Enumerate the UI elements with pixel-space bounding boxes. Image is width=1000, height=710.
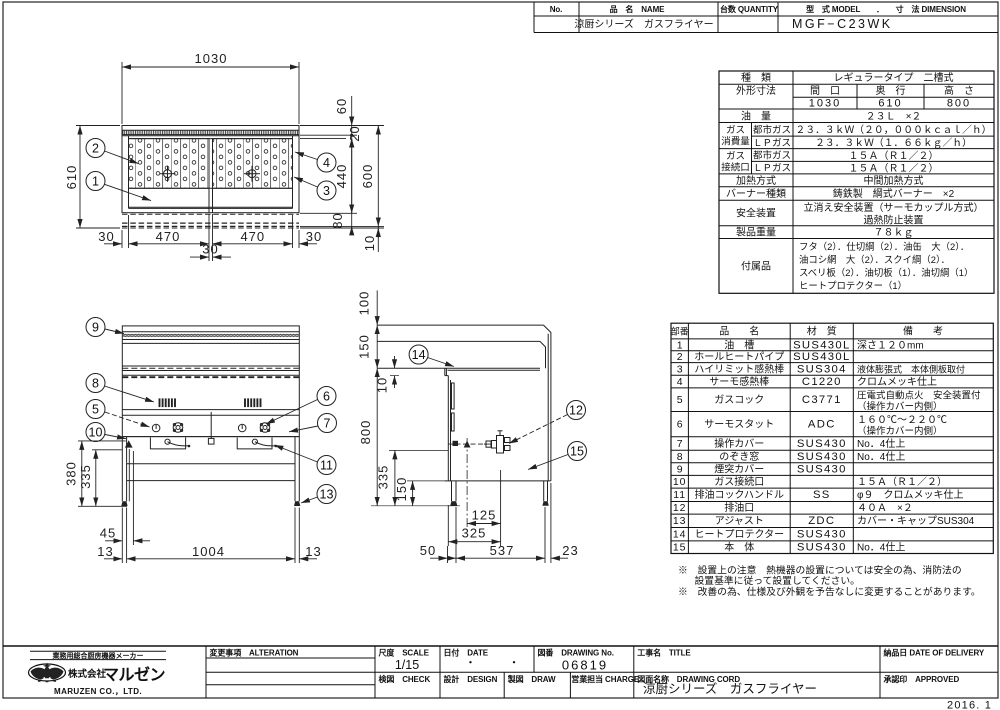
svg-text:ガスコック: ガスコック: [714, 394, 764, 406]
svg-text:備 考: 備 考: [903, 325, 943, 338]
svg-text:06819: 06819: [562, 658, 608, 673]
svg-text:納品日 DATE OF DELIVERY: 納品日 DATE OF DELIVERY: [884, 648, 985, 658]
svg-text:間 口: 間 口: [810, 85, 840, 97]
svg-text:深さ１２０mm: 深さ１２０mm: [857, 339, 924, 351]
svg-text:SUS430: SUS430: [797, 451, 847, 463]
svg-text:537: 537: [490, 543, 515, 558]
svg-text:45: 45: [100, 526, 116, 541]
svg-text:23: 23: [562, 543, 578, 558]
svg-text:消費量: 消費量: [721, 136, 750, 148]
svg-text:8: 8: [677, 451, 683, 463]
svg-text:12: 12: [569, 404, 583, 418]
svg-text:１５Ａ（Ｒ１／２）: １５Ａ（Ｒ１／２）: [849, 150, 939, 162]
svg-text:7: 7: [677, 438, 683, 450]
svg-text:10: 10: [375, 377, 390, 393]
svg-text:ホールヒートパイプ: ホールヒートパイプ: [694, 351, 784, 363]
svg-text:都市ガス: 都市ガス: [753, 124, 791, 136]
svg-text:470: 470: [240, 229, 265, 244]
svg-text:２３Ｌ ×２: ２３Ｌ ×２: [866, 112, 922, 123]
svg-text:3: 3: [677, 363, 683, 375]
svg-text:ガス接続口: ガス接続口: [714, 475, 764, 488]
svg-text:工事名 TITLE: 工事名 TITLE: [637, 648, 691, 658]
svg-text:高 さ: 高 さ: [944, 84, 974, 97]
svg-text:600: 600: [360, 164, 375, 189]
svg-text:油コシ網 大（2）．スクイ綱（2）．: 油コシ網 大（2）．スクイ綱（2）．: [799, 254, 950, 265]
svg-text:No.: No.: [550, 5, 563, 14]
svg-text:800: 800: [947, 98, 971, 110]
svg-text:設置基準に従って設置してください。: 設置基準に従って設置してください。: [695, 574, 860, 587]
svg-text:検図 CHECK: 検図 CHECK: [379, 674, 431, 684]
svg-text:335: 335: [376, 465, 391, 490]
svg-text:No．4仕上: No．4仕上: [857, 437, 905, 450]
svg-text:150: 150: [394, 477, 409, 502]
svg-text:MGF−C23WK: MGF−C23WK: [792, 17, 893, 31]
svg-text:SUS430L: SUS430L: [793, 339, 850, 351]
svg-text:１５Ａ（Ｒ１／２）: １５Ａ（Ｒ１／２）: [849, 163, 939, 175]
svg-text:8: 8: [92, 377, 99, 391]
svg-text:SS: SS: [813, 489, 831, 501]
svg-text:4: 4: [323, 156, 330, 170]
svg-text:変更事項 ALTERATION: 変更事項 ALTERATION: [210, 648, 299, 658]
svg-text:1030: 1030: [195, 51, 228, 66]
svg-text:液体膨張式 本体側板取付: 液体膨張式 本体側板取付: [857, 363, 965, 374]
svg-text:30: 30: [202, 242, 218, 257]
svg-text:型 式 MODEL ． 寸 法 DIMENSION: 型 式 MODEL ． 寸 法 DIMENSION: [806, 4, 966, 14]
svg-text:※ 設置上の注意 熱機器の設置については安全の為、消防法の: ※ 設置上の注意 熱機器の設置については安全の為、消防法の: [678, 564, 962, 577]
svg-text:付属品: 付属品: [741, 260, 771, 273]
svg-text:２３．３ｋＷ（１．６６ｋｇ／ｈ）: ２３．３ｋＷ（１．６６ｋｇ／ｈ）: [815, 137, 972, 149]
svg-text:610: 610: [64, 165, 79, 190]
svg-text:フタ（2）．仕切綱（2）．油缶 大（2）．: フタ（2）．仕切綱（2）．油缶 大（2）．: [799, 241, 969, 252]
svg-text:安全装置: 安全装置: [736, 207, 776, 220]
svg-text:油 槽: 油 槽: [724, 338, 754, 351]
svg-text:610: 610: [878, 98, 902, 110]
svg-text:ガス: ガス: [726, 125, 745, 136]
svg-text:バーナー種類: バーナー種類: [726, 187, 786, 200]
svg-text:奥 行: 奥 行: [876, 84, 906, 97]
svg-text:50: 50: [420, 543, 436, 558]
svg-text:7: 7: [324, 417, 331, 431]
svg-text:設計 DESIGN: 設計 DESIGN: [444, 674, 498, 684]
svg-text:150: 150: [357, 334, 372, 359]
svg-text:接続口: 接続口: [721, 162, 750, 174]
svg-text:11: 11: [673, 489, 686, 501]
svg-text:鋳鉄製 綱式バーナー ×2: 鋳鉄製 綱式バーナー ×2: [833, 187, 955, 200]
svg-text:1/15: 1/15: [395, 658, 419, 672]
svg-text:ＬＰガス: ＬＰガス: [753, 138, 791, 149]
svg-text:都市ガス: 都市ガス: [753, 150, 791, 162]
svg-text:スベリ板（2）．油切板（1）．油切綱（1）: スベリ板（2）．油切板（1）．油切綱（1）: [799, 267, 973, 278]
svg-text:C1220: C1220: [802, 376, 842, 388]
svg-text:ＬＰガス: ＬＰガス: [753, 163, 791, 174]
svg-text:・: ・: [509, 657, 520, 669]
svg-text:3: 3: [323, 184, 330, 198]
svg-text:排油口: 排油口: [724, 501, 754, 514]
svg-text:13: 13: [673, 515, 687, 527]
svg-text:ヒートプロテクター（1）: ヒートプロテクター（1）: [799, 280, 907, 291]
svg-text:のぞき窓: のぞき窓: [719, 450, 759, 463]
svg-text:マルゼン: マルゼン: [103, 665, 166, 684]
svg-text:1: 1: [92, 175, 99, 189]
svg-text:5: 5: [677, 394, 683, 406]
svg-text:（操作カバー内側）: （操作カバー内側）: [857, 425, 943, 437]
svg-text:2016. 1: 2016. 1: [947, 700, 992, 710]
svg-text:SUS430: SUS430: [797, 542, 847, 554]
svg-text:１５Ａ（Ｒ１／２）: １５Ａ（Ｒ１／２）: [857, 476, 947, 488]
svg-text:100: 100: [357, 291, 372, 316]
svg-text:440: 440: [334, 164, 349, 189]
svg-text:クロムメッキ仕上: クロムメッキ仕上: [857, 375, 937, 388]
svg-text:30: 30: [306, 229, 322, 244]
svg-text:11: 11: [320, 459, 333, 473]
svg-text:サーモ感熱棒: サーモ感熱棒: [709, 375, 769, 388]
svg-text:13: 13: [305, 544, 321, 559]
svg-text:ZDC: ZDC: [808, 515, 835, 527]
svg-text:4: 4: [677, 376, 683, 388]
svg-text:20: 20: [347, 125, 362, 141]
svg-text:6: 6: [677, 419, 683, 431]
svg-text:1004: 1004: [192, 544, 225, 559]
svg-text:470: 470: [156, 229, 181, 244]
svg-text:涼厨シリーズ ガスフライヤー: 涼厨シリーズ ガスフライヤー: [574, 18, 713, 31]
svg-text:1: 1: [677, 339, 683, 351]
svg-text:煙突カバー: 煙突カバー: [714, 463, 764, 476]
svg-text:品 名 NAME: 品 名 NAME: [610, 4, 666, 14]
svg-text:業務用総合厨房機器メーカー: 業務用総合厨房機器メーカー: [52, 651, 144, 660]
svg-text:No．4仕上: No．4仕上: [857, 541, 905, 554]
svg-text:MARUZEN CO.，LTD.: MARUZEN CO.，LTD.: [54, 687, 142, 696]
svg-text:４０Ａ ×２: ４０Ａ ×２: [857, 503, 913, 514]
svg-text:12: 12: [673, 502, 687, 514]
svg-text:60: 60: [334, 98, 349, 114]
svg-text:カバー・キャップSUS304: カバー・キャップSUS304: [857, 515, 975, 527]
svg-text:ADC: ADC: [808, 419, 836, 431]
svg-text:6: 6: [323, 390, 330, 404]
svg-text:13: 13: [320, 488, 334, 502]
svg-text:日付 DATE: 日付 DATE: [444, 648, 489, 658]
svg-text:涼厨シリーズ ガスフライヤー: 涼厨シリーズ ガスフライヤー: [643, 681, 817, 696]
svg-text:SUS430: SUS430: [797, 464, 847, 476]
svg-text:10: 10: [362, 235, 377, 251]
svg-text:SUS430: SUS430: [797, 529, 847, 541]
svg-text:30: 30: [98, 229, 114, 244]
svg-text:営業担当 CHARGE: 営業担当 CHARGE: [571, 674, 640, 684]
svg-text:・: ・: [465, 657, 476, 669]
svg-text:10: 10: [673, 476, 687, 488]
svg-text:380: 380: [64, 461, 79, 486]
svg-text:15: 15: [570, 445, 584, 459]
svg-text:アジャスト: アジャスト: [715, 516, 764, 527]
svg-text:１６０℃～２２０℃: １６０℃～２２０℃: [857, 415, 947, 426]
svg-text:品 名: 品 名: [719, 325, 759, 338]
svg-text:ヒートプロテクター: ヒートプロテクター: [694, 529, 784, 541]
svg-text:2: 2: [92, 142, 99, 156]
svg-text:図番 DRAWING No.: 図番 DRAWING No.: [538, 648, 614, 658]
svg-text:ガス: ガス: [726, 151, 745, 162]
svg-text:SUS430: SUS430: [797, 438, 847, 450]
svg-text:立消え安全装置（サーモカップル方式）: 立消え安全装置（サーモカップル方式）: [804, 201, 984, 214]
svg-text:本 体: 本 体: [724, 541, 754, 554]
svg-text:14: 14: [673, 529, 687, 541]
svg-text:14: 14: [412, 348, 426, 362]
svg-text:5: 5: [92, 403, 99, 417]
svg-text:油 量: 油 量: [741, 109, 771, 122]
svg-text:125: 125: [472, 508, 497, 523]
svg-text:9: 9: [92, 321, 99, 335]
svg-text:335: 335: [78, 464, 93, 489]
svg-text:9: 9: [677, 464, 683, 476]
svg-text:サーモスタット: サーモスタット: [704, 419, 774, 431]
svg-text:1030: 1030: [809, 98, 841, 110]
svg-text:株式会社: 株式会社: [68, 668, 107, 680]
svg-text:台数 QUANTITY: 台数 QUANTITY: [720, 4, 779, 14]
svg-text:材 質: 材 質: [807, 325, 837, 338]
svg-text:製図 DRAW: 製図 DRAW: [507, 674, 556, 684]
svg-text:800: 800: [358, 420, 373, 445]
svg-text:13: 13: [97, 544, 113, 559]
svg-text:325: 325: [462, 526, 487, 541]
svg-text:製品重量: 製品重量: [736, 226, 776, 239]
svg-text:No．4仕上: No．4仕上: [857, 450, 905, 463]
svg-text:圧電式自動点火 安全装置付: 圧電式自動点火 安全装置付: [857, 390, 981, 402]
svg-text:2: 2: [677, 351, 683, 363]
svg-text:操作カバー: 操作カバー: [714, 437, 764, 450]
svg-text:排油コックハンドル: 排油コックハンドル: [695, 488, 785, 501]
svg-text:ハイリミット感熱棒: ハイリミット感熱棒: [694, 362, 784, 375]
svg-text:部番: 部番: [671, 326, 689, 337]
svg-text:尺度 SCALE: 尺度 SCALE: [379, 648, 430, 658]
svg-text:種 類: 種 類: [741, 71, 771, 84]
svg-text:80: 80: [330, 212, 345, 228]
svg-text:外形寸法: 外形寸法: [736, 84, 776, 97]
svg-text:レギュラータイプ 二槽式: レギュラータイプ 二槽式: [834, 71, 954, 84]
svg-text:SUS430L: SUS430L: [793, 351, 850, 363]
svg-text:（操作カバー内側）: （操作カバー内側）: [857, 401, 943, 413]
svg-text:承認印 APPROVED: 承認印 APPROVED: [884, 674, 960, 684]
svg-text:15: 15: [673, 542, 687, 554]
svg-text:10: 10: [89, 426, 103, 440]
svg-text:過熱防止装置: 過熱防止装置: [864, 213, 924, 226]
svg-text:C3771: C3771: [802, 394, 842, 406]
svg-text:中間加熱方式: 中間加熱方式: [864, 174, 924, 187]
svg-text:SUS304: SUS304: [797, 363, 847, 375]
svg-text:加熱方式: 加熱方式: [736, 174, 776, 187]
svg-text:２３．３ｋＷ（２０，０００ｋｃａｌ／ｈ）: ２３．３ｋＷ（２０，０００ｋｃａｌ／ｈ）: [796, 124, 992, 136]
svg-text:※ 改善の為、仕様及び外観を予告なしに変更することがあります: ※ 改善の為、仕様及び外観を予告なしに変更することがあります。: [678, 585, 981, 598]
svg-text:φ９ クロムメッキ仕上: φ９ クロムメッキ仕上: [857, 488, 963, 501]
svg-text:７８ｋｇ: ７８ｋｇ: [874, 227, 914, 239]
